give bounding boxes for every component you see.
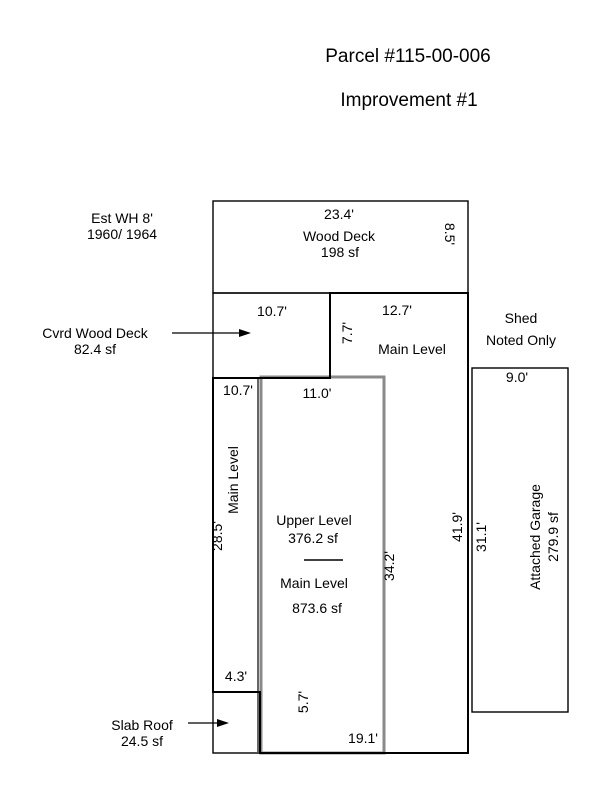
page-title-parcel: Parcel #115-00-006 <box>325 46 490 68</box>
wood-deck-area: 198 sf <box>321 244 359 260</box>
main-level-area: 873.6 sf <box>292 600 342 616</box>
est-wh-note-line1: Est WH 8' <box>87 210 157 226</box>
attached-garage-labels: Attached Garage 279.9 sf <box>526 484 562 590</box>
shed-note-line1: Shed <box>486 307 556 329</box>
dim-garage-width: 9.0' <box>506 369 528 385</box>
upper-level-area: 376.2 sf <box>288 530 338 546</box>
dim-slab-side: 5.7' <box>295 691 311 713</box>
est-wh-note: Est WH 8' 1960/ 1964 <box>87 210 157 242</box>
page-title-improvement: Improvement #1 <box>340 90 477 112</box>
attached-garage-area: 279.9 sf <box>544 484 562 590</box>
attached-garage-label: Attached Garage <box>526 484 544 590</box>
dim-left-wing-jog: 4.3' <box>225 668 247 684</box>
dim-main-level-bottom: 19.1' <box>348 730 378 746</box>
slab-roof-note-line1: Slab Roof <box>111 717 172 733</box>
wood-deck-label: Wood Deck <box>303 228 375 244</box>
main-level-left-label: Main Level <box>225 446 241 514</box>
cvrd-wood-deck-note: Cvrd Wood Deck 82.4 sf <box>42 325 148 357</box>
upper-level-outline <box>261 377 384 753</box>
main-level-top-label: Main Level <box>378 341 446 357</box>
slab-roof-note-line2: 24.5 sf <box>111 733 172 749</box>
dim-wood-deck-depth: 8.5' <box>442 223 458 245</box>
cvrd-wood-deck-note-line1: Cvrd Wood Deck <box>42 325 148 341</box>
dim-cvrd-deck-width: 10.7' <box>257 303 287 319</box>
dim-upper-box-width: 11.0' <box>303 385 332 401</box>
dim-left-wing-side: 28.5' <box>209 521 225 551</box>
upper-level-label: Upper Level <box>276 512 352 528</box>
cvrd-wood-deck-arrow-icon <box>172 329 251 337</box>
dim-main-level-side: 41.9' <box>449 512 465 542</box>
dim-wood-deck-width: 23.4' <box>324 206 354 222</box>
slab-roof-arrow-icon <box>188 719 229 727</box>
slab-roof-note: Slab Roof 24.5 sf <box>111 717 172 749</box>
cvrd-wood-deck-note-line2: 82.4 sf <box>42 341 148 357</box>
shed-note: Shed Noted Only <box>486 307 556 351</box>
dim-garage-side: 31.1' <box>473 522 489 552</box>
main-level-center-label: Main Level <box>280 575 348 591</box>
dim-upper-box-side: 34.2' <box>381 551 397 581</box>
sketch-page: Parcel #115-00-006 Improvement #1 Est WH… <box>0 0 600 800</box>
dim-left-wing-top: 10.7' <box>223 382 253 398</box>
est-wh-note-line2: 1960/ 1964 <box>87 226 157 242</box>
shed-note-line2: Noted Only <box>486 329 556 351</box>
parcel-sketch-drawing <box>0 0 600 800</box>
dim-main-top-width: 12.7' <box>382 302 412 318</box>
dim-cvrd-deck-depth: 7.7' <box>339 322 355 344</box>
